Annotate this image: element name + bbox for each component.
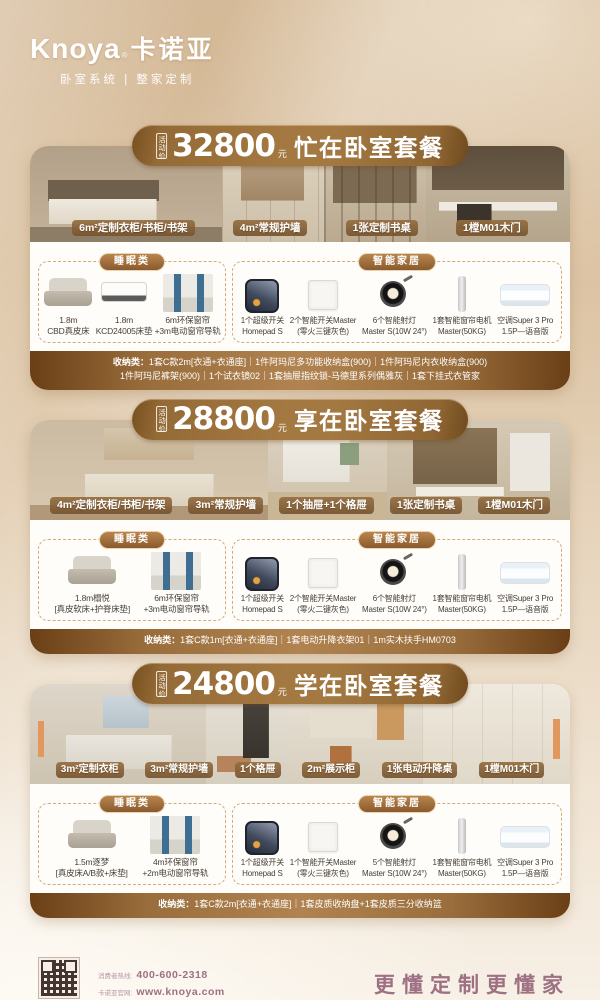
product-line2: (零火三键灰色) <box>297 869 349 878</box>
product-line1: 1套智能窗帘电机 <box>432 316 491 325</box>
brand-logo: Knoya®卡诺亚 <box>30 30 600 66</box>
product-line2: +2m电动窗帘导轨 <box>142 868 208 878</box>
product-line1: 6m环保窗帘 <box>165 315 210 325</box>
curtain-icon <box>150 816 200 854</box>
storage-bar: 收纳类：1套C款1m[衣通+衣通座]｜1套电动升降衣架01｜1m实木扶手HM07… <box>30 629 570 654</box>
photo-label: 1个格屉 <box>235 762 281 778</box>
storage-label: 收纳类： <box>144 635 180 645</box>
product-item: 1.5m逐梦[真皮床A/B款+床垫] <box>56 816 128 879</box>
photo-label: 3m²常规护墙 <box>188 497 263 514</box>
product-item: 1.8mCBD真皮床 <box>43 274 93 337</box>
product-line2: +3m电动窗帘导轨 <box>155 326 221 336</box>
product-item: 1套智能窗帘电机Master(50KG) <box>432 817 491 879</box>
storage-line: 1件阿玛尼裤架(900)｜1个试衣镜02｜1套抽屉指纹锁-马德里系列偶雅灰｜1套… <box>38 370 562 384</box>
curtain-icon <box>151 552 201 590</box>
product-line1: 2个智能开关Master <box>290 594 357 603</box>
product-line1: 1套智能窗帘电机 <box>432 594 491 603</box>
product-line2: [真皮软床+护脊床垫] <box>55 604 131 614</box>
product-item: 1套智能窗帘电机Master(50KG) <box>432 275 491 337</box>
photo-label: 1樘M01木门 <box>478 497 550 514</box>
curtain-motor-icon <box>437 275 487 313</box>
curtain-motor-icon <box>437 817 487 855</box>
product-line2: (零火三键灰色) <box>297 327 349 336</box>
product-line2: Homepad S <box>242 605 282 614</box>
photo-label: 3m²定制衣柜 <box>56 762 124 778</box>
photo-label: 3m²常规护墙 <box>145 762 213 778</box>
photo-label: 1张定制书桌 <box>346 220 418 237</box>
product-line2: [真皮床A/B款+床垫] <box>56 868 128 878</box>
product-line2: (零火二键灰色) <box>297 605 349 614</box>
photo-label: 4m²定制衣柜/书柜/书架 <box>50 497 173 514</box>
storage-bar: 收纳类：1套C款2m[衣通+衣通座]｜1件阿玛尼多功能收纳盒(900)｜1件阿玛… <box>30 351 570 390</box>
package-card-1: 活动价 32800 元 忙在卧室套餐 6m²定制衣柜/书柜/书架 4m²常规护墙… <box>30 125 570 390</box>
product-line1: 4m环保窗帘 <box>153 857 198 867</box>
photo-label: 1张定制书桌 <box>390 497 462 514</box>
product-line1: 1个超级开关 <box>241 858 284 867</box>
curtain-motor-icon <box>437 553 487 591</box>
category-pill: 睡眠类 <box>99 253 165 271</box>
qr-code <box>39 958 79 998</box>
brand-tagline: 卧室系统 | 整家定制 <box>60 71 600 87</box>
package-card-2: 活动价 28800 元 享在卧室套餐 4m²定制衣柜/书柜/书架 3m²常规护墙… <box>30 399 570 654</box>
product-line2: 1.5P—语音版 <box>502 869 549 878</box>
hotline-label: 消费者热线: <box>98 972 132 982</box>
price-unit: 元 <box>278 685 287 698</box>
product-line1: 空调Super 3 Pro <box>497 858 553 867</box>
price-banner-1: 活动价 32800 元 忙在卧室套餐 <box>132 125 468 166</box>
product-item: 6个智能射灯Master S(10W 24°) <box>362 553 427 615</box>
product-item: 1个超级开关Homepad S <box>241 279 284 337</box>
price-value: 28800 <box>172 401 275 437</box>
price-prefix-badge: 活动价 <box>156 133 167 159</box>
product-line1: 6个智能射灯 <box>373 594 416 603</box>
brand-logo-cn: 卡诺亚 <box>130 30 214 66</box>
product-line2: KCD24005床垫 <box>96 326 153 336</box>
category-pill: 睡眠类 <box>99 531 165 549</box>
brand-slogan: 更懂定制更懂家 <box>374 969 570 999</box>
product-line2: Homepad S <box>242 327 282 336</box>
photo-label: 1樘M01木门 <box>456 220 528 237</box>
poster-background: Knoya®卡诺亚 卧室系统 | 整家定制 活动价 32800 元 忙在卧室套餐… <box>0 0 600 1000</box>
price-unit: 元 <box>278 147 287 160</box>
registered-mark-icon: ® <box>122 51 128 60</box>
product-line1: 6m环保窗帘 <box>154 593 199 603</box>
price-value: 24800 <box>172 666 275 702</box>
sleep-category-box: 睡眠类 1.8m榻悦[真皮软床+护脊床垫] 6m环保窗帘+3m电动窗帘导轨 <box>38 539 226 621</box>
product-item: 1个超级开关Homepad S <box>241 821 284 879</box>
smart-home-category-box: 智能家居 1个超级开关Homepad S 2个智能开关Master(零火三键灰色… <box>232 261 562 343</box>
product-line2: Master S(10W 24°) <box>362 605 427 614</box>
hotline-number: 400-600-2318 <box>136 967 207 984</box>
product-line1: 1个超级开关 <box>241 594 284 603</box>
package-title: 忙在卧室套餐 <box>294 129 444 163</box>
product-item: 2个智能开关Master(零火二键灰色) <box>290 558 357 615</box>
contact-info: 消费者热线: 400-600-2318 卡诺亚官网: www.knoya.com <box>98 967 225 1000</box>
homepad-icon <box>245 557 279 591</box>
price-banner-2: 活动价 28800 元 享在卧室套餐 <box>132 399 468 440</box>
smart-home-category-box: 智能家居 1个超级开关Homepad S 1个智能开关Master(零火三键灰色… <box>232 803 562 885</box>
mattress-icon <box>99 274 149 312</box>
curtain-icon <box>163 274 213 312</box>
product-item: 6m环保窗帘+3m电动窗帘导轨 <box>155 274 221 337</box>
product-line2: CBD真皮床 <box>47 326 89 336</box>
product-line2: Master(50KG) <box>438 869 486 878</box>
bed-icon <box>67 816 117 854</box>
category-pill: 智能家居 <box>358 531 436 549</box>
storage-label: 收纳类： <box>113 357 149 367</box>
price-banner-3: 活动价 24800 元 学在卧室套餐 <box>132 663 468 704</box>
product-line1: 5个智能射灯 <box>373 858 416 867</box>
spotlight-icon <box>369 553 419 591</box>
spotlight-icon <box>369 275 419 313</box>
product-line2: Master(50KG) <box>438 605 486 614</box>
product-line1: 1.8m榻悦 <box>75 593 110 603</box>
photo-label: 6m²定制衣柜/书柜/书架 <box>72 220 195 237</box>
product-line1: 1.8m <box>59 315 77 325</box>
product-line2: Master S(10W 24°) <box>362 869 427 878</box>
category-pill: 智能家居 <box>358 795 436 813</box>
product-item: 4m环保窗帘+2m电动窗帘导轨 <box>142 816 208 879</box>
photo-label: 4m²常规护墙 <box>233 220 308 237</box>
smart-switch-icon <box>308 822 338 852</box>
product-item: 空调Super 3 Pro1.5P—语音版 <box>497 817 553 879</box>
homepad-icon <box>245 821 279 855</box>
air-conditioner-icon <box>500 553 550 591</box>
category-pill: 睡眠类 <box>99 795 165 813</box>
product-line1: 6个智能射灯 <box>373 316 416 325</box>
product-line2: Master(50KG) <box>438 327 486 336</box>
product-item: 1.8m榻悦[真皮软床+护脊床垫] <box>55 552 131 615</box>
product-line2: Master S(10W 24°) <box>362 327 427 336</box>
footer: 卡诺亚官方公众号 了解更多 消费者热线: 400-600-2318 卡诺亚官网:… <box>0 958 600 1000</box>
photo-label: 1张电动升降桌 <box>382 762 458 778</box>
bed-icon <box>43 274 93 312</box>
photo-label: 1个抽屉+1个格屉 <box>279 497 374 514</box>
product-item: 空调Super 3 Pro1.5P—语音版 <box>497 553 553 615</box>
product-item: 1.8mKCD24005床垫 <box>96 274 153 337</box>
package-title: 学在卧室套餐 <box>294 667 444 701</box>
smart-home-category-box: 智能家居 1个超级开关Homepad S 2个智能开关Master(零火二键灰色… <box>232 539 562 621</box>
smart-switch-icon <box>308 558 338 588</box>
category-pill: 智能家居 <box>358 253 436 271</box>
sleep-category-box: 睡眠类 1.5m逐梦[真皮床A/B款+床垫] 4m环保窗帘+2m电动窗帘导轨 <box>38 803 226 885</box>
photo-label: 2m²展示柜 <box>302 762 360 778</box>
storage-line: 1套C款2m[衣通+衣通座]｜1套皮质收纳盘+1套皮质三分收纳篮 <box>194 899 442 909</box>
storage-line: 1套C款2m[衣通+衣通座]｜1件阿玛尼多功能收纳盒(900)｜1件阿玛尼内衣收… <box>149 357 487 367</box>
package-card-3: 活动价 24800 元 学在卧室套餐 3m²定制衣柜 3m²常规护墙 1个格屉 … <box>30 663 570 918</box>
price-value: 32800 <box>172 128 275 164</box>
brand-header: Knoya®卡诺亚 卧室系统 | 整家定制 <box>0 0 600 87</box>
product-line1: 空调Super 3 Pro <box>497 594 553 603</box>
product-item: 6个智能射灯Master S(10W 24°) <box>362 275 427 337</box>
brand-logo-en: Knoya <box>30 33 121 65</box>
photo-label: 1樘M01木门 <box>479 762 544 778</box>
smart-switch-icon <box>308 280 338 310</box>
storage-label: 收纳类： <box>158 899 194 909</box>
product-line2: Homepad S <box>242 869 282 878</box>
price-prefix-badge: 活动价 <box>156 406 167 432</box>
product-line1: 2个智能开关Master <box>290 316 357 325</box>
product-item: 6m环保窗帘+3m电动窗帘导轨 <box>144 552 210 615</box>
product-item: 2个智能开关Master(零火三键灰色) <box>290 280 357 337</box>
product-item: 空调Super 3 Pro1.5P—语音版 <box>497 275 553 337</box>
storage-line: 1套C款1m[衣通+衣通座]｜1套电动升降衣架01｜1m实木扶手HM0703 <box>180 635 456 645</box>
product-item: 1个超级开关Homepad S <box>241 557 284 615</box>
product-line1: 1.8m <box>115 315 133 325</box>
product-line1: 1套智能窗帘电机 <box>432 858 491 867</box>
sleep-category-box: 睡眠类 1.8mCBD真皮床 1.8mKCD24005床垫 6m环保窗帘+ <box>38 261 226 343</box>
product-item: 1套智能窗帘电机Master(50KG) <box>432 553 491 615</box>
price-unit: 元 <box>278 421 287 434</box>
storage-bar: 收纳类：1套C款2m[衣通+衣通座]｜1套皮质收纳盘+1套皮质三分收纳篮 <box>30 893 570 918</box>
product-item: 1个智能开关Master(零火三键灰色) <box>290 822 357 879</box>
homepad-icon <box>245 279 279 313</box>
product-line2: 1.5P—语音版 <box>502 605 549 614</box>
price-prefix-badge: 活动价 <box>156 671 167 697</box>
spotlight-icon <box>369 817 419 855</box>
website-url: www.knoya.com <box>136 984 224 1000</box>
package-title: 享在卧室套餐 <box>294 402 444 436</box>
product-line1: 1个超级开关 <box>241 316 284 325</box>
product-line1: 1个智能开关Master <box>290 858 357 867</box>
air-conditioner-icon <box>500 275 550 313</box>
product-line2: 1.5P—语音版 <box>502 327 549 336</box>
product-line1: 空调Super 3 Pro <box>497 316 553 325</box>
product-item: 5个智能射灯Master S(10W 24°) <box>362 817 427 879</box>
bed-icon <box>67 552 117 590</box>
product-line2: +3m电动窗帘导轨 <box>144 604 210 614</box>
website-label: 卡诺亚官网: <box>98 989 132 999</box>
product-line1: 1.5m逐梦 <box>74 857 109 867</box>
air-conditioner-icon <box>500 817 550 855</box>
